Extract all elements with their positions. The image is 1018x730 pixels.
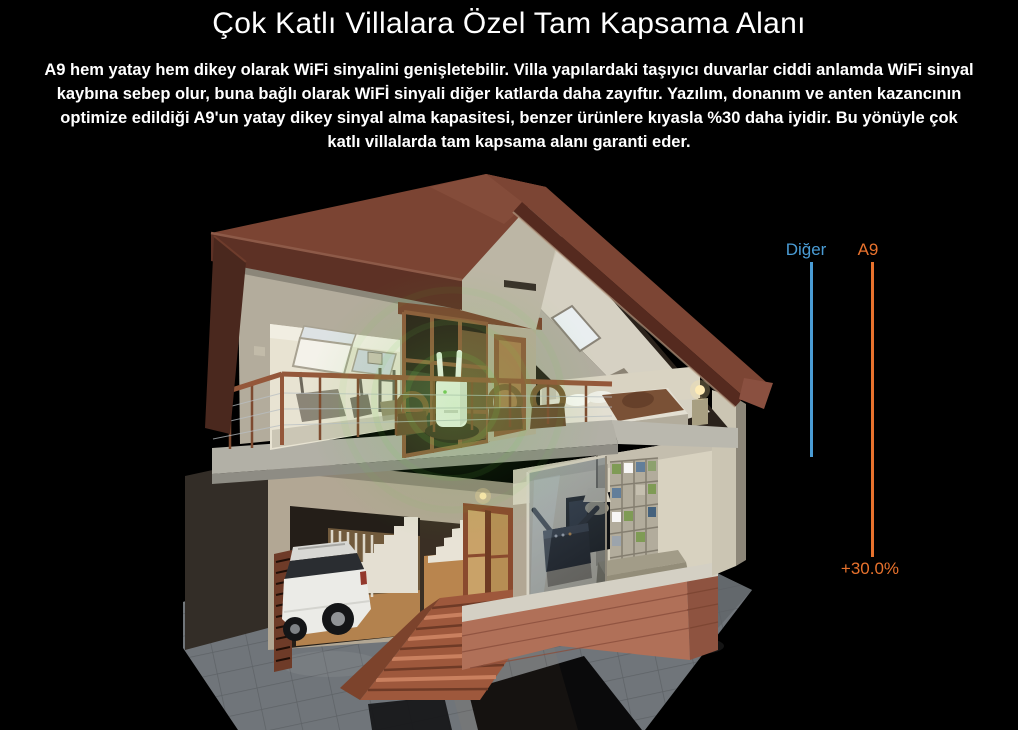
section-title: Çok Katlı Villalara Özel Tam Kapsama Ala… bbox=[0, 7, 1018, 41]
wifi-signal-glow bbox=[305, 267, 605, 543]
comparison-bar-other bbox=[810, 262, 813, 457]
section-description: A9 hem yatay hem dikey olarak WiFi sinya… bbox=[44, 58, 974, 154]
comparison-bar-a9 bbox=[871, 262, 874, 557]
comparison-label-other: Diğer bbox=[770, 240, 842, 260]
comparison-delta-label: +30.0% bbox=[828, 559, 912, 579]
suv-car bbox=[282, 541, 371, 641]
product-feature-section: Çok Katlı Villalara Özel Tam Kapsama Ala… bbox=[0, 0, 1018, 730]
comparison-label-a9: A9 bbox=[834, 240, 902, 260]
